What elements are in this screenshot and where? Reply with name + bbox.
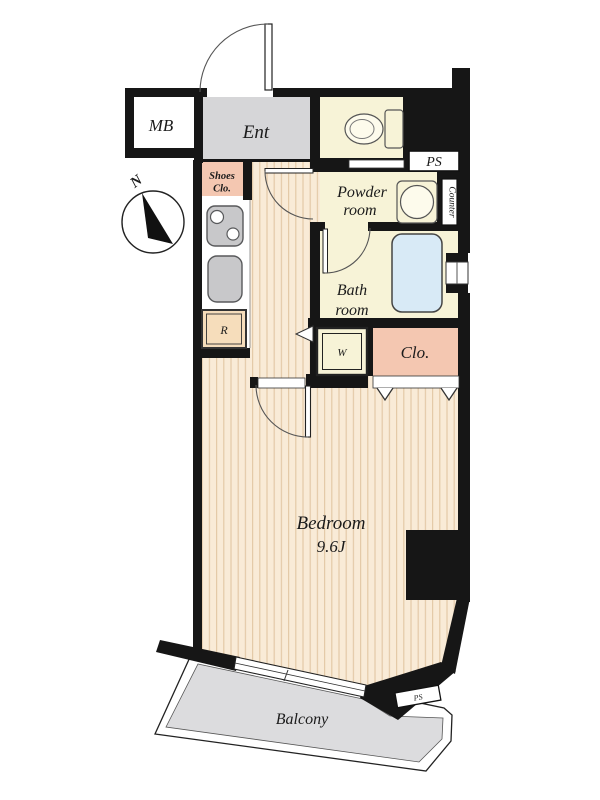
floor-plan-drawing: Balcony [0, 0, 600, 800]
wall-entrance-step-line [196, 159, 312, 162]
ps-lower-label: PS [412, 692, 423, 703]
kitchen-stove [207, 206, 243, 246]
entrance-door-arc [200, 24, 268, 92]
bath-room-label-line2: room [335, 302, 368, 319]
powder-room-label-line1: Powder [336, 184, 388, 201]
shoes-closet-label-line1: Shoes [209, 171, 235, 182]
powder-sink-basin [401, 186, 434, 219]
toilet-tank [385, 110, 403, 148]
fridge-label: R [219, 323, 228, 337]
stove-burner-1 [211, 211, 224, 224]
washer-label: W [337, 347, 347, 359]
toilet-fixture [345, 110, 403, 148]
powder-room-label-line2: room [343, 202, 376, 219]
stove-burner-2 [227, 228, 239, 240]
compass-north-label: N [127, 171, 147, 192]
floor-plan-page: Balcony [0, 0, 600, 800]
bath-room-label-line1: Bath [337, 282, 367, 299]
wall-shoes-closet-right [243, 160, 252, 200]
entrance-door-leaf [265, 24, 272, 90]
hall-door-leaf [265, 169, 313, 174]
bedroom-label-line1: Bedroom [297, 513, 366, 534]
wall-mb-left [125, 88, 134, 158]
toilet-door-threshold [349, 160, 404, 168]
wall-left-main [193, 160, 202, 652]
wall-pillar [406, 530, 464, 600]
mb-label: MB [148, 116, 174, 135]
wall-top-right-notch [452, 68, 470, 97]
bath-door-leaf [323, 229, 328, 273]
bedroom-door-threshold [258, 378, 305, 388]
bedroom-door-leaf [306, 386, 311, 437]
washer-space: W [317, 328, 367, 375]
shoes-closet-label-line2: Clo. [213, 184, 231, 195]
counter-label: Counter [447, 186, 457, 217]
entrance-door [200, 24, 272, 92]
wall-entrance-left [194, 88, 203, 163]
wall-bedroom-door-stub [250, 377, 258, 388]
powder-sink [397, 181, 437, 223]
bath-window-wall-bottom [446, 284, 468, 293]
ps-upper-label: PS [425, 155, 442, 170]
bathtub [392, 234, 442, 312]
bedroom-label-line2: 9.6J [317, 537, 347, 556]
compass: N [122, 171, 184, 253]
toilet-bowl [345, 114, 383, 144]
wall-below-fridge [193, 348, 250, 358]
closet-door-track [373, 376, 459, 388]
wall-bath-bottom [308, 318, 460, 328]
bath-window-wall-top [446, 253, 468, 262]
wall-mb-bottom [125, 148, 196, 158]
bath-window [446, 253, 468, 293]
kitchen-sink [208, 256, 242, 302]
closet-label: Clo. [401, 343, 430, 362]
fridge-space: R [202, 310, 246, 348]
entrance-label: Ent [242, 122, 270, 143]
balcony-label: Balcony [276, 711, 329, 728]
